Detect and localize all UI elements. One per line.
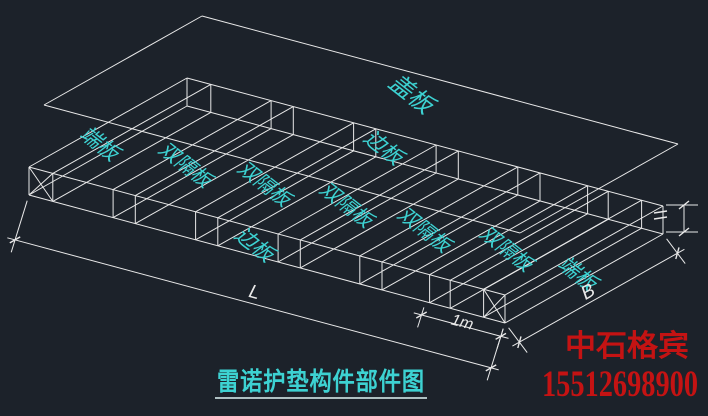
wire-line <box>44 16 202 105</box>
wire-line <box>654 211 667 213</box>
wire-line <box>11 201 27 253</box>
wire-line <box>667 239 686 264</box>
drawing-title: 雷诺护垫构件部件图 <box>217 367 425 396</box>
wire-line <box>486 365 496 371</box>
cad-canvas: 盖板端板双隔板双隔板边板双隔板边板双隔板双隔板端板L1mB 雷诺护垫构件部件图 … <box>0 0 708 416</box>
cad-drawing: 盖板端板双隔板双隔板边板双隔板边板双隔板双隔板端板L1mB 雷诺护垫构件部件图 … <box>0 0 708 416</box>
wire-line <box>676 247 679 259</box>
wire-line <box>202 16 678 144</box>
wire-line <box>484 295 505 317</box>
wire-line <box>518 336 521 348</box>
phone-number: 15512698900 <box>542 364 698 405</box>
plate-label: 端板 <box>75 122 125 168</box>
plate-label: 双隔板 <box>475 222 538 278</box>
wire-line <box>29 173 53 195</box>
company-name: 中石格宾 <box>565 330 689 363</box>
plate-label: 双隔板 <box>154 138 217 194</box>
wire-line <box>496 333 506 339</box>
wire-line <box>416 312 426 318</box>
wire-line <box>654 217 667 219</box>
plate-label: 盖板 <box>383 69 440 122</box>
dim-label-L: L <box>247 281 263 304</box>
plate-label: 端板 <box>553 252 603 298</box>
plate-label: 边板 <box>230 223 280 269</box>
wire-line <box>10 237 20 243</box>
wire-line <box>509 328 528 353</box>
wire-line <box>44 105 520 233</box>
dim-label-1m: 1m <box>449 312 475 334</box>
